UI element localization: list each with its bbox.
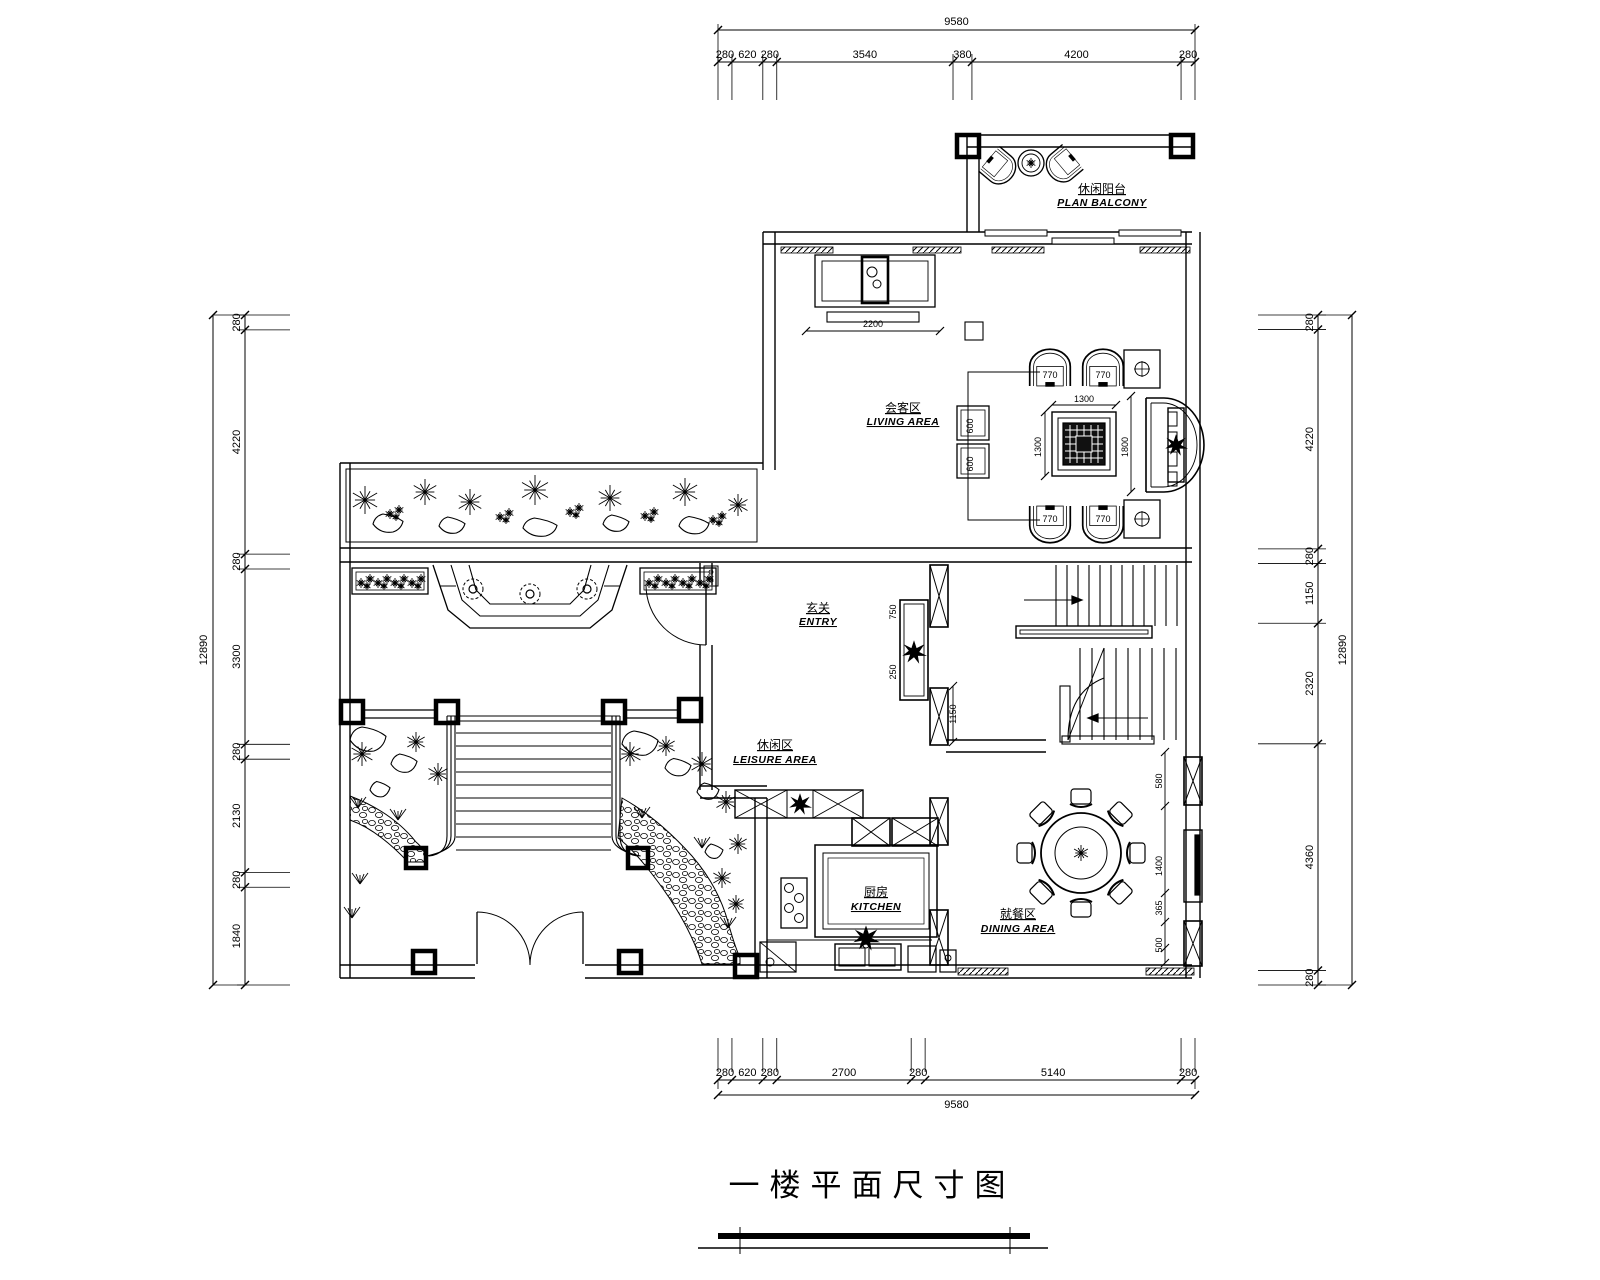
sofa-dim: 1800 bbox=[1120, 437, 1130, 457]
dim-total-label: 12890 bbox=[198, 635, 210, 666]
right-dim-4: 500 bbox=[1154, 937, 1164, 952]
table-height-dim: 1300 bbox=[1033, 437, 1043, 457]
dim-seg-label: 280 bbox=[1304, 969, 1316, 987]
window-sill-hatch bbox=[913, 247, 961, 253]
window-sill-hatch bbox=[1146, 968, 1194, 975]
title-underline-thick bbox=[718, 1233, 1030, 1239]
drawing-title: 一楼平面尺寸图 bbox=[729, 1168, 1016, 1204]
dim-total-label: 9580 bbox=[944, 16, 968, 28]
tv-decor bbox=[867, 267, 877, 277]
dim-seg-label: 280 bbox=[716, 49, 734, 61]
balcony-chair bbox=[978, 146, 1022, 190]
dim-seg-label: 4220 bbox=[231, 430, 243, 454]
dim-seg-label: 5140 bbox=[1041, 1067, 1065, 1079]
entry-label-en: ENTRY bbox=[799, 616, 837, 628]
dining-chair bbox=[1106, 800, 1134, 828]
spotlight-outer bbox=[463, 579, 483, 599]
corner-unit-diag bbox=[760, 942, 796, 972]
chair-dim-2: 770 bbox=[1095, 370, 1110, 380]
kitchen-label-en: KITCHEN bbox=[851, 901, 901, 913]
dim-seg-label: 3300 bbox=[231, 644, 243, 668]
sink-basin bbox=[869, 948, 895, 966]
niche-dim-1: 750 bbox=[888, 604, 898, 619]
right-dim-1: 580 bbox=[1154, 773, 1164, 788]
dim-seg-label: 1150 bbox=[1304, 582, 1316, 606]
window-sill-hatch bbox=[958, 968, 1008, 975]
kitchen-label-zh: 厨房 bbox=[864, 884, 888, 899]
dim-seg-label: 2700 bbox=[832, 1067, 856, 1079]
dining-chair bbox=[1070, 789, 1092, 807]
stairs bbox=[1016, 565, 1177, 744]
dim-seg-label: 620 bbox=[738, 1067, 756, 1079]
stair-rail bbox=[429, 716, 447, 856]
dim-chain-top: 958028062028035403804200280 bbox=[714, 16, 1199, 100]
rock bbox=[523, 518, 557, 536]
window-sill-hatch bbox=[992, 247, 1044, 253]
pebble-patch bbox=[350, 796, 425, 862]
dim-seg-label: 3540 bbox=[853, 49, 877, 61]
table-width-dim: 1300 bbox=[1074, 394, 1094, 404]
dim-seg-label: 2320 bbox=[1304, 671, 1316, 695]
rock bbox=[679, 517, 709, 534]
living-armchair bbox=[1083, 505, 1124, 542]
gate-swing-arc bbox=[477, 912, 530, 965]
living-armchair bbox=[1030, 349, 1071, 386]
leisure-label-zh: 休闲区 bbox=[757, 738, 793, 752]
dim-seg-label: 280 bbox=[1304, 547, 1316, 565]
burner bbox=[785, 884, 794, 893]
entry-label-zh: 玄关 bbox=[806, 600, 830, 615]
window-sill-hatch bbox=[1140, 247, 1190, 253]
niche-dim-2: 250 bbox=[888, 664, 898, 679]
tv-dim: 2200 bbox=[863, 319, 883, 329]
side-table-dim-2: 600 bbox=[965, 456, 975, 471]
rock bbox=[665, 759, 691, 776]
dim-total-label: 9580 bbox=[944, 1099, 968, 1111]
wall-cabinet-bar bbox=[1195, 835, 1200, 895]
living-armchair bbox=[1083, 349, 1124, 386]
sliding-door-panel bbox=[1052, 238, 1114, 244]
sofa-cushion bbox=[1168, 412, 1177, 426]
dining-label-zh: 就餐区 bbox=[1000, 906, 1036, 921]
living-furniture bbox=[802, 255, 1204, 543]
burner bbox=[795, 894, 804, 903]
dim-seg-label: 280 bbox=[231, 743, 243, 761]
sink-basin bbox=[839, 948, 865, 966]
dim-seg-label: 280 bbox=[231, 871, 243, 889]
dim-seg-label: 4200 bbox=[1064, 49, 1088, 61]
dim-seg-label: 280 bbox=[716, 1067, 734, 1079]
dim-chain-right: 128902804220280115023204360280 bbox=[1258, 311, 1356, 989]
dim-seg-label: 280 bbox=[761, 49, 779, 61]
dim-seg-label: 280 bbox=[231, 552, 243, 570]
leisure-label-en: LEISURE AREA bbox=[733, 754, 817, 766]
dim-seg-label: 280 bbox=[909, 1067, 927, 1079]
right-dim-3: 365 bbox=[1154, 900, 1164, 915]
handrail-inner bbox=[1020, 630, 1148, 634]
floor-plan-canvas: 958028062028035403804200280 958028062028… bbox=[0, 0, 1600, 1280]
cabinet-plant-icon bbox=[789, 793, 812, 815]
rock bbox=[350, 727, 386, 751]
stair-winder bbox=[1068, 678, 1104, 740]
niche-plant-icon bbox=[902, 640, 927, 663]
balcony-label-en: PLAN BALCONY bbox=[1057, 197, 1147, 209]
dim-seg-label: 1840 bbox=[231, 924, 243, 948]
column bbox=[619, 951, 641, 973]
stair-arrow-head bbox=[1088, 714, 1098, 722]
chair-dim-1: 770 bbox=[1042, 370, 1057, 380]
living-label-zh: 会客区 bbox=[885, 400, 921, 415]
chair-dim-3: 770 bbox=[1042, 514, 1057, 524]
chair-dim-4: 770 bbox=[1095, 514, 1110, 524]
column bbox=[341, 701, 363, 723]
dim-total-label: 12890 bbox=[1337, 635, 1349, 666]
stair-winder-diag bbox=[1068, 648, 1104, 740]
column bbox=[679, 699, 701, 721]
spotlight-outer bbox=[577, 579, 597, 599]
curved-step bbox=[433, 565, 627, 628]
sliding-door-panel bbox=[985, 230, 1047, 236]
dining-chair bbox=[1017, 842, 1035, 864]
spotlight-inner bbox=[526, 590, 534, 598]
dim-seg-label: 280 bbox=[1179, 49, 1197, 61]
column bbox=[413, 951, 435, 973]
dim-seg-label: 4360 bbox=[1304, 845, 1316, 869]
sofa-cushion bbox=[1168, 452, 1177, 466]
dining-chair bbox=[1028, 800, 1056, 828]
dining-chair bbox=[1070, 899, 1092, 917]
rug-border bbox=[968, 372, 1040, 520]
rock bbox=[370, 782, 390, 797]
stair-width-dim: 1150 bbox=[948, 704, 958, 723]
dim-seg-label: 380 bbox=[953, 49, 971, 61]
dim-seg-label: 280 bbox=[1304, 313, 1316, 331]
spotlight-outer bbox=[520, 584, 540, 604]
garden bbox=[341, 469, 757, 977]
balcony-furniture bbox=[978, 144, 1084, 190]
dim-chain-left: 128902804220280330028021302801840 bbox=[198, 311, 290, 989]
rock bbox=[439, 517, 465, 533]
rock bbox=[622, 731, 658, 755]
dim-seg-label: 4220 bbox=[1304, 427, 1316, 451]
column bbox=[603, 701, 625, 723]
handrail bbox=[1016, 626, 1152, 638]
planter-inner bbox=[346, 469, 757, 542]
balcony-label-zh: 休闲阳台 bbox=[1078, 181, 1126, 196]
dim-seg-label: 2130 bbox=[231, 804, 243, 828]
rock bbox=[603, 515, 629, 531]
right-dim-2: 1400 bbox=[1154, 856, 1164, 876]
burner bbox=[795, 914, 804, 923]
dim-seg-label: 620 bbox=[738, 49, 756, 61]
living-label-en: LIVING AREA bbox=[867, 416, 940, 428]
dining-label-en: DINING AREA bbox=[981, 923, 1056, 935]
sliding-door-panel bbox=[1119, 230, 1181, 236]
column bbox=[1171, 135, 1193, 157]
lattice-center bbox=[1076, 436, 1092, 452]
window-sill-hatch bbox=[781, 247, 833, 253]
stair-arrow-head bbox=[1072, 596, 1082, 604]
floor-plan-page: 958028062028035403804200280 958028062028… bbox=[0, 0, 1600, 1280]
title-block: 一楼平面尺寸图 bbox=[698, 1168, 1048, 1254]
room-labels: 休闲阳台 PLAN BALCONY 会客区 LIVING AREA 玄关 ENT… bbox=[733, 181, 1147, 935]
dim-seg-label: 280 bbox=[761, 1067, 779, 1079]
dining-chair bbox=[1127, 842, 1145, 864]
rock bbox=[391, 754, 417, 772]
floor-lamp-table bbox=[965, 322, 983, 340]
rock bbox=[705, 844, 723, 858]
side-table-dim-1: 600 bbox=[965, 418, 975, 433]
gate-swing-arc bbox=[530, 912, 583, 965]
dim-seg-label: 280 bbox=[1179, 1067, 1197, 1079]
column bbox=[957, 135, 979, 157]
dim-chain-bottom: 958028062028027002805140280 bbox=[714, 1038, 1199, 1111]
burner bbox=[785, 904, 794, 913]
dining-chair bbox=[1106, 878, 1134, 906]
walls bbox=[340, 135, 1202, 978]
dining-chair bbox=[1028, 878, 1056, 906]
dim-seg-label: 280 bbox=[231, 313, 243, 331]
living-armchair bbox=[1030, 505, 1071, 542]
tv-decor bbox=[873, 280, 881, 288]
